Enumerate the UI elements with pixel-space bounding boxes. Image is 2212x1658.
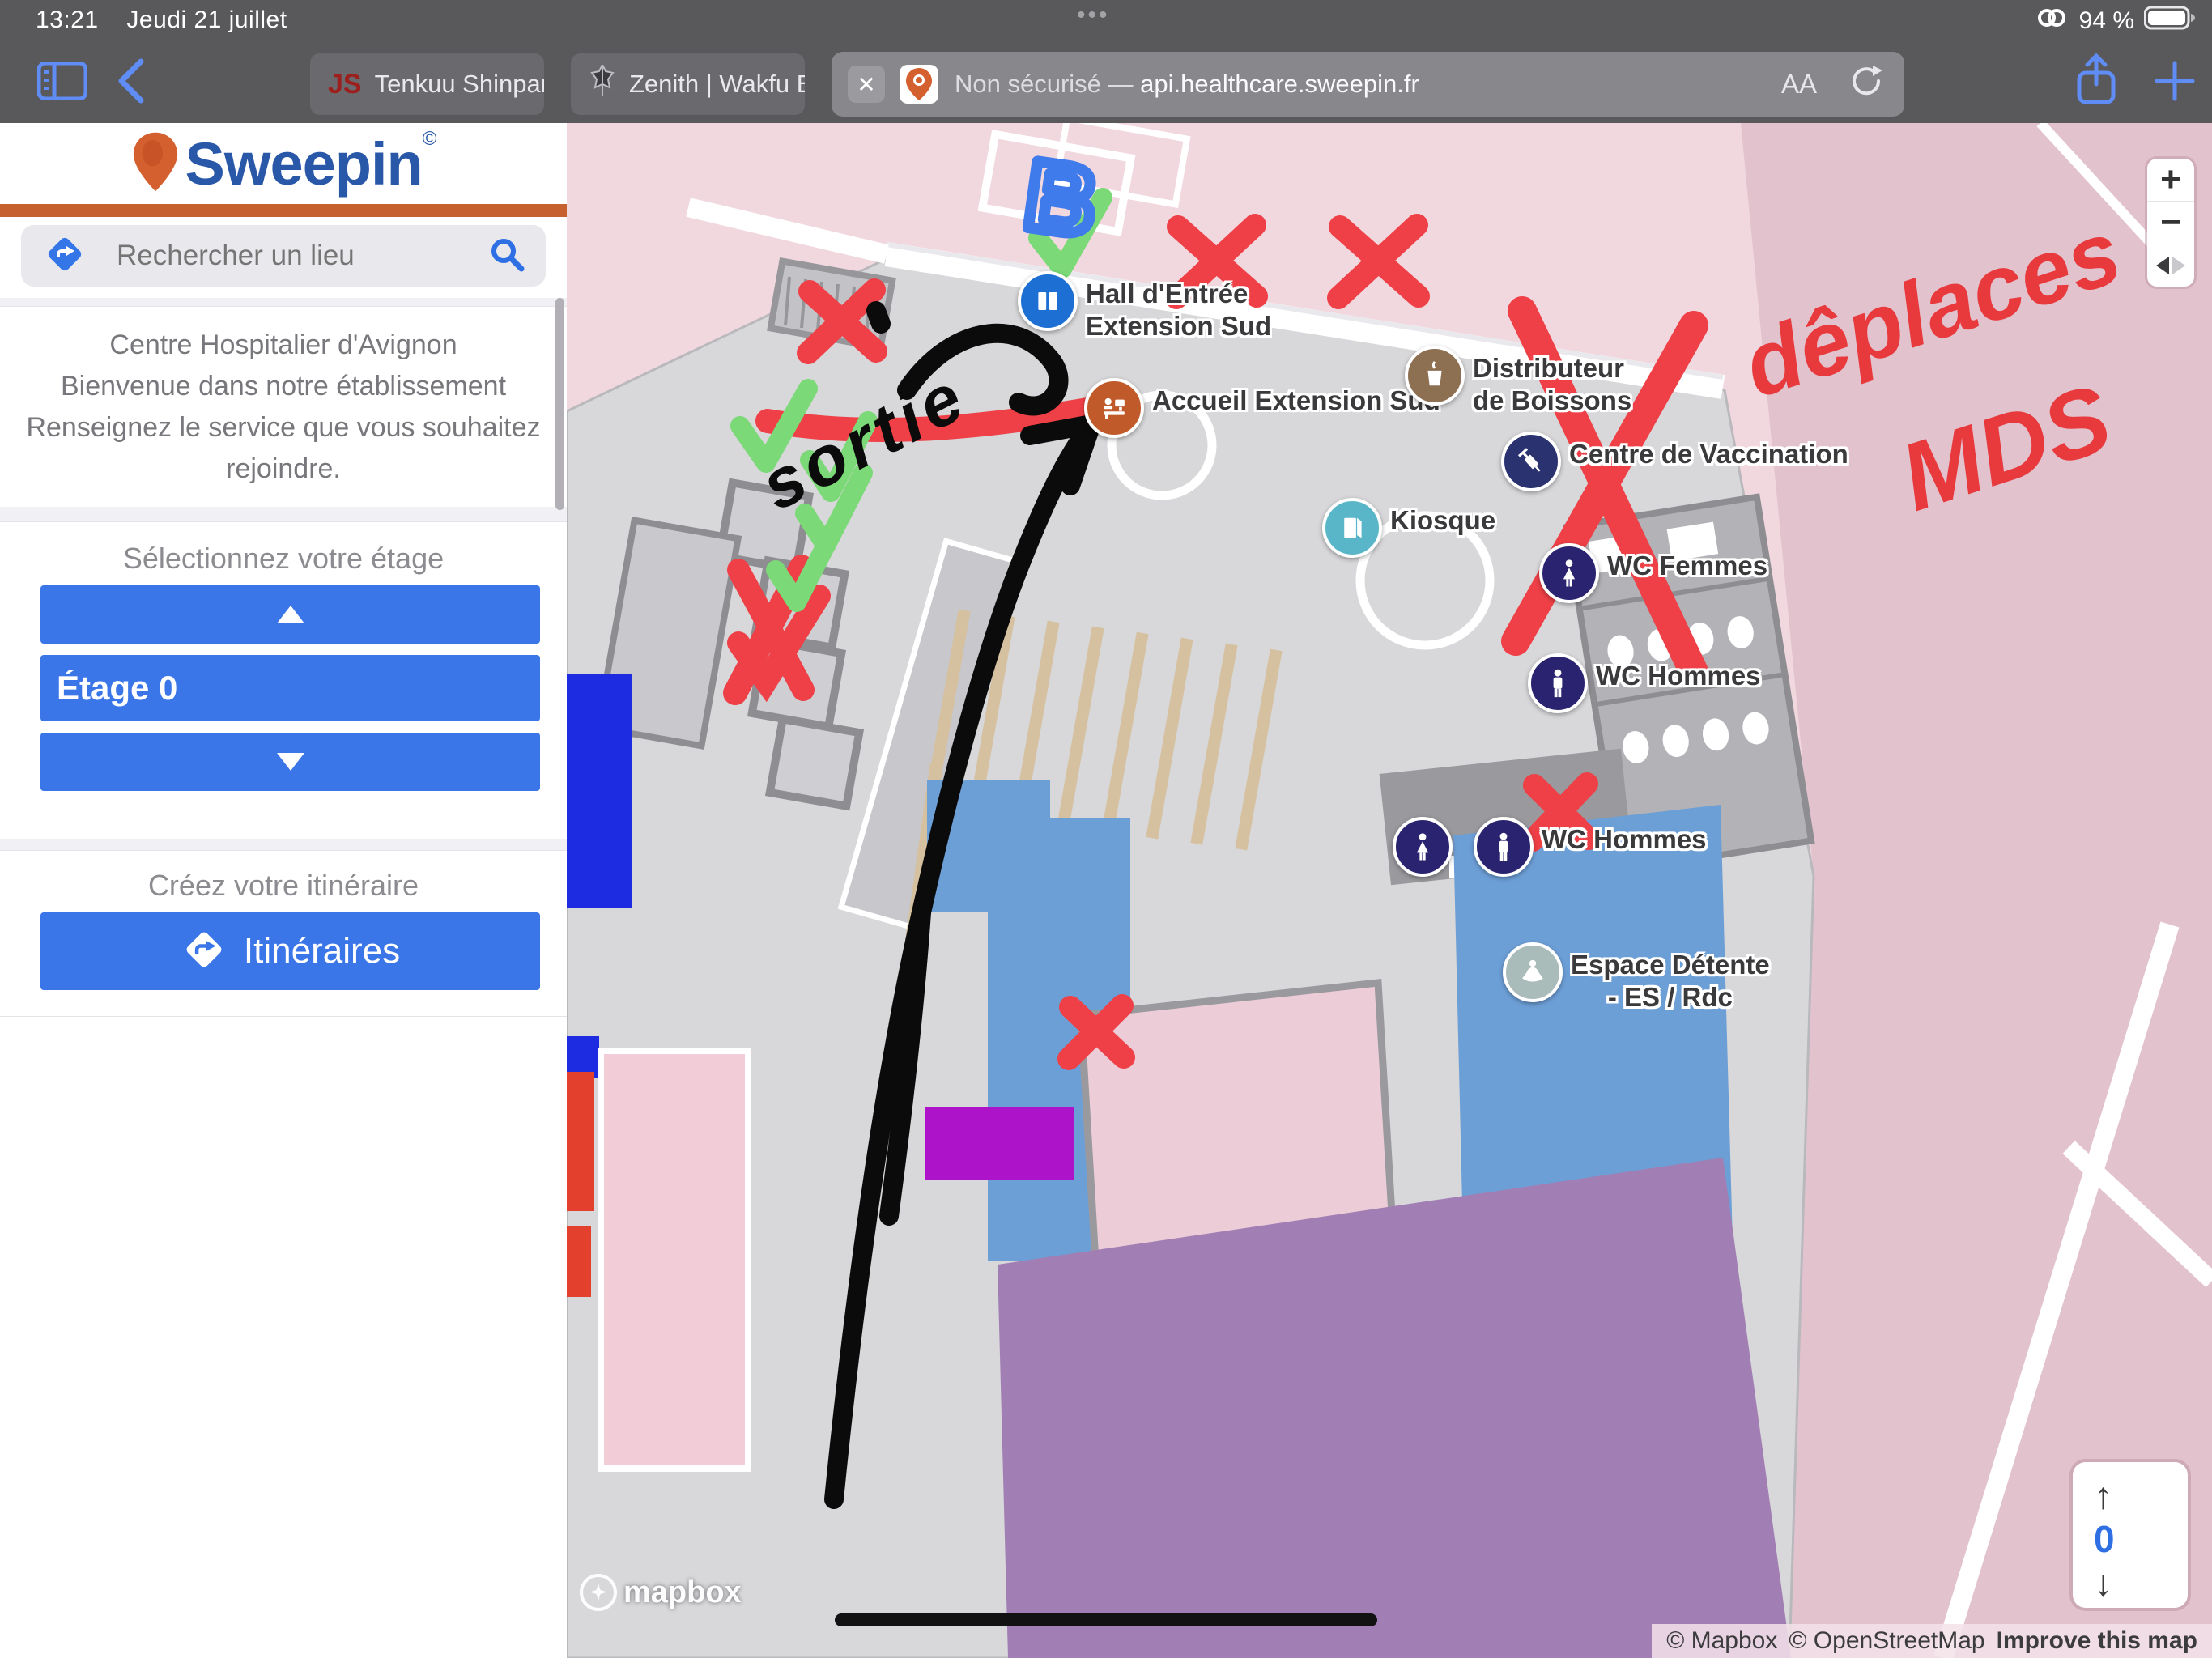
search-bar[interactable] xyxy=(21,225,546,287)
poi-label: WC Hommes xyxy=(1542,823,1707,856)
sweepin-wordmark: Sweepin xyxy=(185,130,423,198)
door-icon xyxy=(1018,271,1078,331)
map-zoom-controls: + − xyxy=(2147,159,2194,287)
tab-label: Tenkuu Shinpan xyxy=(375,70,544,99)
floor-down-button[interactable] xyxy=(40,733,540,791)
poi-label: Espace Détente xyxy=(1571,950,1770,980)
kiosk-icon xyxy=(1322,498,1382,558)
brand-divider xyxy=(0,204,567,217)
multitask-dots-icon: ••• xyxy=(1077,2,1110,29)
floor-value: 0 xyxy=(2094,1517,2188,1561)
room-vivid-blue xyxy=(567,674,632,908)
gap-2 xyxy=(0,507,567,521)
tab-label: Zenith | Wakfu B xyxy=(629,70,805,99)
safari-toolbar: 13:21 Jeudi 21 juillet ••• 94 % JS Tenku… xyxy=(0,0,2212,123)
sweepin-sidebar: Sweepin © Centre Hospitalier d'Avignon B… xyxy=(0,123,568,1658)
meditation-icon xyxy=(1503,942,1563,1002)
clock: 13:21 xyxy=(36,6,99,33)
address-bar[interactable]: ✕ Non sécurisé — api.healthcare.sweepin.… xyxy=(832,52,1904,117)
letter-b-annotation: B xyxy=(1019,140,1103,257)
tab-tenkuu-shinpan[interactable]: JS Tenkuu Shinpan xyxy=(310,53,544,115)
search-icon[interactable] xyxy=(489,236,525,276)
search-card xyxy=(0,217,567,298)
female-icon xyxy=(1393,817,1453,877)
poi-distributeur[interactable]: Distributeurde Boissons xyxy=(1405,346,1631,417)
attrib-mapbox[interactable]: © Mapbox xyxy=(1666,1627,1777,1655)
logo-card: Sweepin © xyxy=(0,123,567,204)
poi-label: de Boissons xyxy=(1473,385,1631,415)
poi-wc-femmes[interactable]: WC Femmes xyxy=(1539,543,1767,603)
reception-icon xyxy=(1084,378,1144,438)
close-tab-button[interactable]: ✕ xyxy=(848,66,885,103)
map-attribution: © Mapbox © OpenStreetMap Improve this ma… xyxy=(1652,1624,2212,1658)
poi-label: WC Femmes xyxy=(1607,550,1767,582)
poi-wc-hommes-upper[interactable]: WC Hommes xyxy=(1528,653,1761,713)
status-date: Jeudi 21 juillet xyxy=(126,6,287,33)
welcome-card: Centre Hospitalier d'Avignon Bienvenue d… xyxy=(0,306,567,508)
poi-espace-detente[interactable]: Espace Détente- ES / Rdc xyxy=(1503,942,1770,1014)
current-floor-button[interactable]: Étage 0 xyxy=(40,655,540,721)
male-icon xyxy=(1528,653,1588,713)
poi-kiosque[interactable]: Kiosque xyxy=(1322,498,1495,558)
beverage-cup-icon xyxy=(1405,346,1465,406)
poi-label: Accueil Extension Sud xyxy=(1152,385,1440,417)
tab-zenith-wakfu[interactable]: Zenith | Wakfu B xyxy=(571,53,805,115)
zoom-out-button[interactable]: − xyxy=(2147,202,2194,244)
status-left: 13:21 Jeudi 21 juillet xyxy=(36,6,287,34)
room-red-small xyxy=(567,1226,591,1297)
tab-favicon-shield-icon xyxy=(589,65,616,104)
poi-label: - ES / Rdc xyxy=(1608,982,1733,1012)
floor-up-button[interactable] xyxy=(40,585,540,644)
hotspot-link-icon xyxy=(2034,6,2069,36)
sweepin-pin-icon xyxy=(130,131,181,197)
tab-favicon-js: JS xyxy=(328,69,362,100)
site-favicon-sweepin-pin-icon xyxy=(900,65,938,104)
syringe-icon xyxy=(1501,432,1561,491)
gap-1 xyxy=(0,298,567,306)
route-card: Créez votre itinéraire Itinéraires xyxy=(0,850,567,1017)
reload-button[interactable] xyxy=(1849,62,1883,106)
poi-label: Centre de Vaccination xyxy=(1569,438,1848,470)
room-magenta xyxy=(925,1107,1074,1180)
establishment-name: Centre Hospitalier d'Avignon xyxy=(0,329,567,361)
attrib-osm[interactable]: © OpenStreetMap xyxy=(1789,1627,1984,1655)
poi-vaccination[interactable]: Centre de Vaccination xyxy=(1501,432,1848,491)
floor-selector-card: Sélectionnez votre étage Étage 0 xyxy=(0,521,567,840)
poi-label: Kiosque xyxy=(1390,504,1495,537)
poi-label: Hall d'Entrée xyxy=(1086,278,1248,308)
welcome-line: rejoindre. xyxy=(0,453,567,485)
room-pink-left xyxy=(601,1051,748,1469)
room-red xyxy=(567,1072,594,1211)
poi-wc-hommes-lower[interactable]: WC Hommes xyxy=(1393,817,1707,877)
itinerary-diamond-icon xyxy=(181,926,228,977)
gap-3 xyxy=(0,839,567,850)
share-button[interactable] xyxy=(2074,53,2118,111)
poi-accueil[interactable]: Accueil Extension Sud xyxy=(1084,378,1440,438)
itineraries-label: Itinéraires xyxy=(244,931,400,971)
poi-hall-entree[interactable]: Hall d'EntréeExtension Sud xyxy=(1018,271,1271,342)
ipad-screen: 13:21 Jeudi 21 juillet ••• 94 % JS Tenku… xyxy=(0,0,2212,1658)
poi-label: Distributeur xyxy=(1473,353,1624,383)
zoom-in-button[interactable]: + xyxy=(2147,159,2194,202)
sweepin-mark: © xyxy=(423,128,437,151)
male-icon xyxy=(1474,817,1534,877)
floorplan-canvas: sortie B dêplaces MDS xyxy=(567,123,2212,1658)
floor-up-arrow[interactable]: ↑ xyxy=(2094,1473,2188,1517)
home-indicator[interactable] xyxy=(835,1613,1377,1626)
route-heading: Créez votre itinéraire xyxy=(0,869,567,903)
floor-down-arrow[interactable]: ↓ xyxy=(2094,1561,2188,1605)
compass-button[interactable] xyxy=(2147,244,2194,287)
new-tab-button[interactable] xyxy=(2154,60,2196,106)
triangle-down-icon xyxy=(277,753,304,771)
indoor-map[interactable]: sortie B dêplaces MDS Hall d'EntréeExten… xyxy=(567,123,2212,1658)
female-icon xyxy=(1539,543,1599,603)
welcome-line: Renseignez le service que vous souhaitez xyxy=(0,412,567,444)
mapbox-logo[interactable]: mapbox xyxy=(580,1574,742,1611)
sidebar-scrollbar[interactable] xyxy=(555,298,564,510)
search-input[interactable] xyxy=(115,239,489,273)
status-right: 94 % xyxy=(2034,5,2196,37)
directions-diamond-icon[interactable] xyxy=(44,233,86,279)
mapbox-logo-text: mapbox xyxy=(623,1575,742,1610)
welcome-line: Bienvenue dans notre établissement xyxy=(0,371,567,402)
url-text: api.healthcare.sweepin.fr xyxy=(1140,70,1419,98)
poi-label: WC Hommes xyxy=(1596,660,1761,692)
back-button[interactable] xyxy=(115,58,147,108)
battery-percent: 94 % xyxy=(2079,7,2134,35)
sidebar-toggle-button[interactable] xyxy=(37,62,87,104)
attrib-improve-link[interactable]: Improve this map xyxy=(1997,1627,2197,1655)
floor-stepper-widget: ↑ 0 ↓ xyxy=(2073,1462,2188,1608)
reader-aa-button[interactable]: AA xyxy=(1781,69,1817,100)
floor-heading: Sélectionnez votre étage xyxy=(0,542,567,576)
current-floor-label: Étage 0 xyxy=(57,669,177,708)
status-bar: 13:21 Jeudi 21 juillet ••• 94 % xyxy=(0,0,2212,40)
triangle-up-icon xyxy=(277,606,304,623)
poi-label: Extension Sud xyxy=(1086,311,1271,341)
battery-icon xyxy=(2144,5,2196,37)
security-label: Non sécurisé — xyxy=(955,70,1140,98)
itineraries-button[interactable]: Itinéraires xyxy=(40,912,540,990)
